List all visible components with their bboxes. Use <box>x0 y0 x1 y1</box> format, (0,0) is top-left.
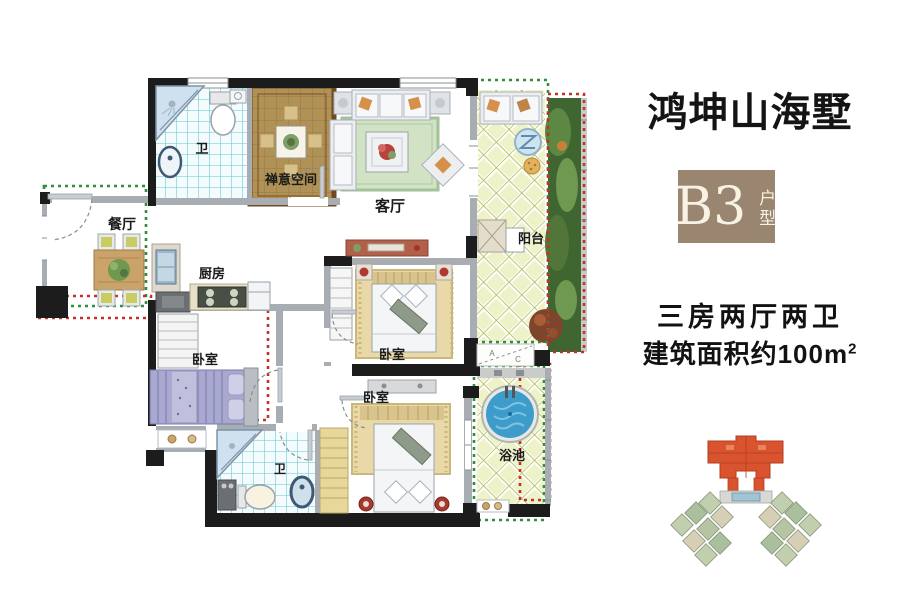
spec-area-text: 建筑面积约100m <box>643 339 849 369</box>
shell-icon <box>495 503 502 510</box>
toilet-icon <box>245 485 275 509</box>
ac-closet: A C <box>477 344 534 366</box>
shell-icon <box>168 435 176 443</box>
room-label-bath-top: 卫 <box>195 142 208 157</box>
balcony-floor <box>477 90 545 342</box>
building-key-plan <box>658 433 838 568</box>
project-title: 鸿坤山海墅 <box>600 80 900 138</box>
info-panel: 鸿坤山海墅 B3 户型 三房两厅两卫 建筑面积约100m2 <box>600 0 900 600</box>
stove-icon <box>198 287 246 307</box>
pool-sill <box>477 500 509 512</box>
sink-icon <box>159 147 181 177</box>
zen-cushion <box>284 106 298 120</box>
headboard <box>244 368 258 426</box>
washer-icon <box>230 90 246 103</box>
ac-letter-c: C <box>515 355 521 364</box>
room-label-dining: 餐厅 <box>107 216 136 233</box>
shell-icon <box>188 435 196 443</box>
floor-plan: A C 卫 禅意空间 客厅 餐厅 厨房 卧室 <box>0 0 620 600</box>
unit-type-badge: B3 户型 <box>678 170 775 243</box>
building-core <box>720 491 772 503</box>
spec-area: 建筑面积约100m2 <box>600 334 900 371</box>
bedroom-bottom-furniture <box>320 404 450 513</box>
zen-cushion <box>260 134 274 148</box>
shell-icon <box>483 503 490 510</box>
wardrobe-icon <box>330 268 352 340</box>
room-label-bedroom-mid: 卧室 <box>379 347 405 363</box>
red-plant <box>529 309 563 343</box>
pillow <box>228 374 244 395</box>
spec-rooms: 三房两厅两卫 <box>600 295 900 334</box>
ac-letter-a: A <box>489 349 495 358</box>
room-label-bedroom-bottom: 卧室 <box>363 390 389 406</box>
dining-furniture <box>94 234 144 306</box>
bay-window <box>158 430 206 448</box>
zen-cushion <box>308 134 322 148</box>
unit-type-suffix: 户型 <box>753 189 778 229</box>
pillow <box>228 399 244 420</box>
pool-ladder <box>505 386 508 398</box>
spec-area-sup: 2 <box>848 340 857 357</box>
room-label-bedroom-left: 卧室 <box>192 352 218 368</box>
closet-strip <box>320 428 348 513</box>
toilet-icon <box>211 105 235 135</box>
room-label-zen: 禅意空间 <box>264 172 317 188</box>
fridge-icon <box>248 282 270 310</box>
highlighted-unit <box>708 436 783 491</box>
room-label-bath-bottom: 卫 <box>274 462 286 476</box>
room-label-balcony: 阳台 <box>518 231 544 247</box>
stool-icon <box>524 158 540 174</box>
room-label-kitchen: 厨房 <box>199 266 225 282</box>
sink-icon <box>291 477 313 507</box>
page: A C 卫 禅意空间 客厅 餐厅 厨房 卧室 <box>0 0 900 600</box>
washer-icon <box>218 480 236 510</box>
unit-type-code: B3 <box>675 181 746 233</box>
room-label-living: 客厅 <box>374 197 405 215</box>
room-label-pool: 浴池 <box>499 448 525 464</box>
